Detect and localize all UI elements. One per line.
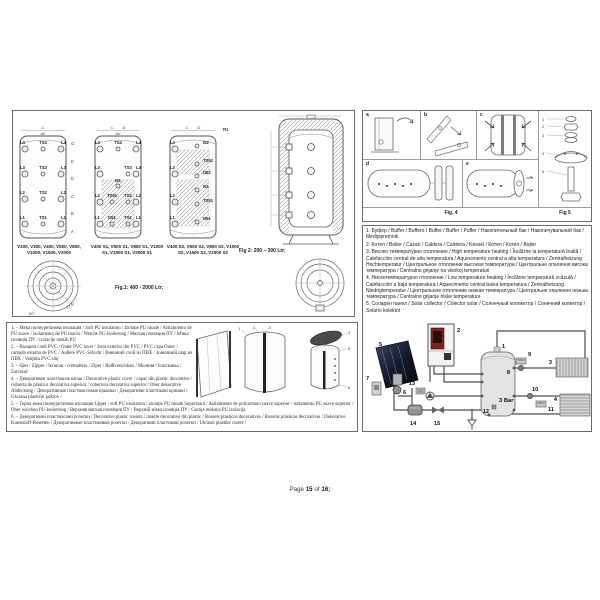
- insulation-item: 3. – Цип / Zipper / fermoar / cremallera…: [11, 364, 193, 376]
- horizontal-tank-open-sketch: [463, 160, 537, 206]
- port-label: L2: [61, 190, 67, 195]
- legend-item: 2. Котел / Boiler / Cazan / Caldera / Ca…: [366, 242, 590, 248]
- panel-letter-d: d: [366, 161, 369, 167]
- port-label: TS4: [39, 140, 47, 145]
- panel-letter-b: b: [424, 112, 427, 118]
- footer-total-pages: 16;: [322, 487, 331, 493]
- fig4-panel-c: c: [477, 111, 539, 160]
- port-label: TS51: [107, 193, 118, 198]
- footer-page-number: 15: [306, 487, 313, 493]
- insulation-number: 4: [348, 330, 351, 335]
- port-label: L2: [95, 193, 101, 198]
- port-label: L4: [61, 140, 67, 145]
- legend-item: 3. Високо температурно отопление / High …: [366, 249, 590, 273]
- port-label: L2: [170, 193, 176, 198]
- dim-letter: B: [71, 211, 74, 229]
- schematic-number-14: 14: [410, 421, 417, 427]
- dim-letter: E: [71, 159, 74, 177]
- fig4-panel-b: b: [421, 111, 477, 160]
- panel-letter-e: e: [466, 161, 469, 167]
- port-label: L1: [136, 215, 142, 220]
- fig5-part-number: 4: [542, 151, 545, 156]
- legend-item: 4. Нискотемпературно отопление / Low tem…: [366, 275, 590, 299]
- insulation-number: 1: [238, 326, 241, 331]
- insulation-roll-sketch: [363, 111, 419, 158]
- schematic-number-10: 10: [532, 387, 538, 393]
- port-label: L4: [170, 140, 176, 145]
- fig4-panel-d: d: [363, 160, 463, 208]
- r1-label: R1: [223, 127, 229, 132]
- schematic-number-12: 12: [483, 409, 489, 415]
- port-label: TS4: [114, 140, 122, 145]
- wrapped-tank-sketch: [477, 111, 537, 158]
- port-label: I52: [203, 140, 209, 145]
- port-label: TS52: [203, 158, 214, 163]
- port-label: L1: [61, 215, 67, 220]
- schematic-number-8: 8: [507, 370, 510, 376]
- av-label: AV: [115, 131, 120, 136]
- fig4-label: Fig. 4: [363, 210, 539, 216]
- vent-cap-exploded-sketch: 1 2 3 4 5: [539, 111, 591, 207]
- fig2-caption: Fig 2: 200 – 300 Ltr;: [239, 248, 286, 254]
- insulation-legend-bottom: 5. – Горна мека полиуретанова изолация U…: [11, 402, 355, 428]
- port-label: TS2: [39, 190, 47, 195]
- dim-letter: D: [71, 176, 74, 194]
- port-label: L4: [95, 140, 101, 145]
- port-label: L1: [170, 215, 176, 220]
- tank1-models: V200, V300, V400, V500, V800, V1000, V15…: [13, 244, 85, 256]
- schematic-number-4: 4: [554, 397, 558, 403]
- port-label: L2: [20, 190, 26, 195]
- tank2-front-view: C D AV L4 TS4 L4 L3 TS3 L3 I51: [92, 124, 144, 242]
- tank3-front-view: C D L4 L3 L2 L1 I52 TS52 D52 I51 TS51: [167, 124, 219, 242]
- schematic-number-6: 6: [403, 390, 406, 396]
- port-label: L3: [136, 165, 142, 170]
- port-label: L4: [20, 140, 26, 145]
- port-label: I51: [115, 178, 121, 183]
- fig4-panel-a: a: [363, 111, 421, 160]
- fig4-fig5-panel: a b c: [362, 110, 592, 222]
- dimension-letters: G E D C B A: [71, 141, 74, 246]
- port-label: L1: [20, 215, 26, 220]
- port-label: L3: [20, 165, 26, 170]
- insulation-sketches: 1 2 3 4 5 6: [195, 325, 355, 403]
- port-label: L1: [95, 215, 101, 220]
- panel-letter-c: c: [480, 112, 483, 118]
- tank2-models: V400 S1, V500 S1, V800 S1, V1000 S1, V15…: [87, 244, 167, 256]
- dim-c-label: C: [111, 125, 114, 130]
- schematic-number-5: 5: [379, 342, 382, 348]
- port-label: L2: [136, 193, 142, 198]
- insulation-sheets-sketch: [421, 111, 475, 158]
- legend-schematic-panel: 1. Буфер / Buffer / Buffero / Buffer / B…: [362, 225, 592, 432]
- pressure-label: 3 Bar: [499, 398, 514, 404]
- fig2-cross-section: [263, 113, 355, 247]
- insulation-legend-left: 1. – Мека полиуретанова изолация / Soft …: [11, 326, 193, 402]
- fig1-caption: Fig.1: 400 - 2000 Ltr;: [115, 285, 163, 291]
- fig5-panel: 1 2 3 4 5: [539, 111, 591, 208]
- fig5-part-number: 2: [542, 124, 545, 129]
- fig5-part-number: 1: [542, 117, 545, 122]
- tank1-front-view: C AV L4 TS4 L4 L3 TS3 L3 L2 TS2 L2: [17, 124, 69, 242]
- port-label: TS51: [203, 198, 214, 203]
- port-label: D51: [203, 216, 211, 221]
- schematic-number-3: 3: [549, 360, 552, 366]
- insulation-number: 2: [253, 325, 256, 330]
- dim-c-label: C: [42, 125, 45, 130]
- port-label: I51: [203, 184, 209, 189]
- legend-item: 5. Соларен панел / Solar collector / Col…: [366, 301, 590, 313]
- panel-letter-a: a: [366, 112, 369, 118]
- tank3-models: V400 S2, V500 S2, V800 S2, V1000 S2, V15…: [163, 244, 243, 256]
- port-label: L3: [95, 165, 101, 170]
- port-label: TS2: [124, 193, 132, 198]
- fig2-top-view: [287, 257, 353, 315]
- insulation-item: 4. – Декоративен пластмасов капак / Deco…: [11, 377, 193, 400]
- manual-page: C AV L4 TS4 L4 L3 TS3 L3 L2 TS2 L2: [0, 0, 600, 600]
- fig1-fig2-panel: C AV L4 TS4 L4 L3 TS3 L3 L2 TS2 L2: [12, 110, 355, 317]
- insulation-number: 6: [348, 385, 351, 390]
- fig4-panel-e: e: [463, 160, 539, 208]
- page-footer: Page15of16;: [0, 487, 600, 493]
- legend-item: 1. Буфер / Buffer / Buffero / Buffer / B…: [366, 228, 590, 240]
- insulation-panel: 1. – Мека полиуретанова изолация / Soft …: [6, 322, 358, 432]
- insulation-item: 5. – Горна мека полиуретанова изолация U…: [11, 402, 355, 414]
- port-label: TS1: [39, 215, 47, 220]
- angle-90-label: 90°: [29, 311, 35, 316]
- port-label: D51: [108, 215, 116, 220]
- system-legend: 1. Буфер / Buffer / Buffero / Buffer / B…: [366, 228, 590, 315]
- horizontal-tank-endcap-sketch: [363, 160, 461, 206]
- schematic-number-9: 9: [528, 352, 531, 358]
- dim-d-label: D: [198, 125, 201, 130]
- schematic-number-13: 13: [409, 381, 415, 387]
- angle-225-label: 22.5°: [65, 301, 76, 310]
- footer-text: Page: [290, 487, 304, 493]
- av-label: AV: [40, 131, 45, 136]
- schematic-number-11: 11: [548, 407, 554, 413]
- insulation-number: 5: [348, 346, 351, 351]
- port-label: TS1: [124, 215, 132, 220]
- hydraulic-schematic: 1 2 3 4 5 6 7 8 9 10 11 12 13 14 15 3 Ba…: [364, 322, 591, 432]
- port-label: TS3: [124, 165, 132, 170]
- schematic-number-15: 15: [434, 421, 440, 427]
- footer-text: of: [315, 487, 320, 493]
- schematic-number-7: 7: [366, 376, 369, 382]
- insulation-item: 1. – Мека полиуретанова изолация / Soft …: [11, 326, 193, 344]
- port-label: TS3: [39, 165, 47, 170]
- dim-letter: G: [71, 141, 74, 159]
- schematic-number-1: 1: [502, 344, 505, 350]
- fig5-part-number: 3: [542, 133, 545, 138]
- insulation-number: 3: [269, 325, 272, 330]
- dim-c-label: C: [186, 125, 189, 130]
- fig5-part-number: 5: [542, 169, 545, 174]
- port-label: L4: [136, 140, 142, 145]
- port-label: L3: [61, 165, 67, 170]
- fig1-top-view: 22.5° 90°: [15, 259, 93, 317]
- insulation-item: 2. – Външен слой PVC / Outer PVC layer /…: [11, 345, 193, 363]
- port-label: L3: [170, 165, 176, 170]
- schematic-number-2: 2: [457, 328, 460, 334]
- port-label: D52: [203, 170, 211, 175]
- insulation-item: 6. – Декоративни пластмасови розетки / D…: [11, 415, 355, 427]
- dim-d-label: D: [123, 125, 126, 130]
- fig5-label: Fig 5: [539, 210, 591, 216]
- dim-letter: C: [71, 194, 74, 212]
